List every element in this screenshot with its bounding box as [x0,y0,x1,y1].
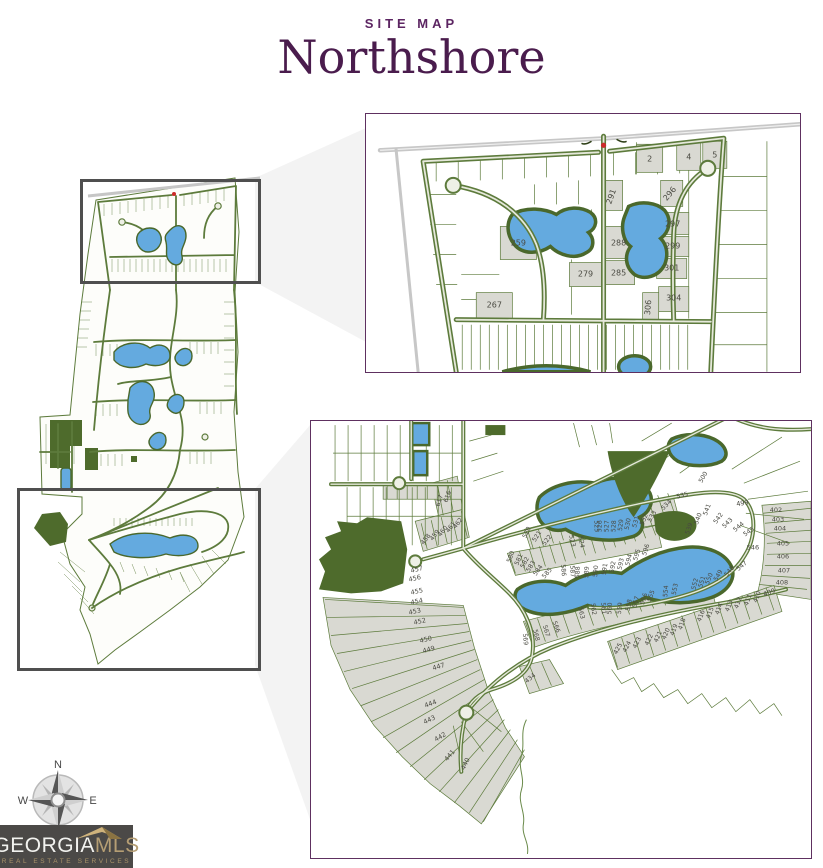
svg-text:590: 590 [592,565,600,578]
svg-text:2: 2 [647,154,652,163]
georgia-mls-logo: GEORGIAMLS REAL ESTATE SERVICES [0,825,133,868]
svg-text:456: 456 [408,573,422,584]
entrance-marker [601,143,606,148]
svg-text:259: 259 [511,239,526,248]
svg-text:404: 404 [774,524,786,532]
svg-text:4: 4 [686,152,691,161]
svg-text:408: 408 [776,578,788,586]
community-title: Northshore [0,33,823,81]
cul-de-sac [393,477,405,489]
svg-text:535: 535 [676,491,689,501]
svg-text:267: 267 [487,301,502,310]
cul-de-sac [459,706,473,720]
inset-map-north[interactable]: 245291296259288297299301285279267304306 [365,113,801,373]
beam-top [255,128,366,342]
svg-text:527: 527 [603,520,610,532]
svg-text:406: 406 [777,552,789,560]
svg-text:455: 455 [410,586,424,596]
svg-text:589: 589 [583,566,591,578]
svg-text:540: 540 [693,512,704,526]
svg-text:586: 586 [559,564,567,576]
cul-de-sac [446,178,461,193]
overview-highlight-top [80,179,261,284]
svg-text:285: 285 [611,269,626,278]
svg-text:500: 500 [697,471,709,485]
svg-text:588: 588 [574,566,581,578]
svg-text:405: 405 [777,539,789,547]
svg-text:528: 528 [610,520,618,532]
svg-text:407: 407 [778,566,790,574]
overview-highlight-bottom [17,488,261,671]
logo-tagline: REAL ESTATE SERVICES [2,858,131,865]
site-map-page: SITE MAP Northshore [0,0,823,868]
cul-de-sac [700,161,715,176]
inset-map-south[interactable]: 5355004994024034044054065464074084095415… [310,420,812,859]
svg-text:561: 561 [599,602,607,614]
svg-text:297: 297 [665,219,680,228]
svg-text:306: 306 [643,299,653,315]
site-map-label: SITE MAP [0,16,823,31]
svg-text:529: 529 [617,519,625,532]
svg-text:402: 402 [770,506,782,514]
svg-text:288: 288 [611,239,626,248]
creek-line [520,720,527,854]
svg-text:547: 547 [735,560,749,573]
compass-north-label: N [54,759,62,771]
compass-west-label: W [18,795,29,807]
svg-text:546: 546 [747,543,759,551]
svg-text:5: 5 [712,150,717,159]
svg-text:403: 403 [772,515,784,523]
svg-text:559: 559 [616,602,624,615]
header: SITE MAP Northshore [0,16,823,81]
svg-text:541: 541 [702,503,713,517]
svg-text:299: 299 [665,242,680,251]
svg-text:279: 279 [578,270,593,279]
svg-text:301: 301 [664,264,679,273]
side-road [396,149,418,372]
compass-east-label: E [89,795,96,807]
svg-text:554: 554 [662,585,670,598]
svg-text:525: 525 [592,520,599,532]
compass-hub [52,794,65,807]
svg-text:569: 569 [521,633,529,646]
svg-text:304: 304 [666,294,681,303]
roof-icon [74,826,126,841]
